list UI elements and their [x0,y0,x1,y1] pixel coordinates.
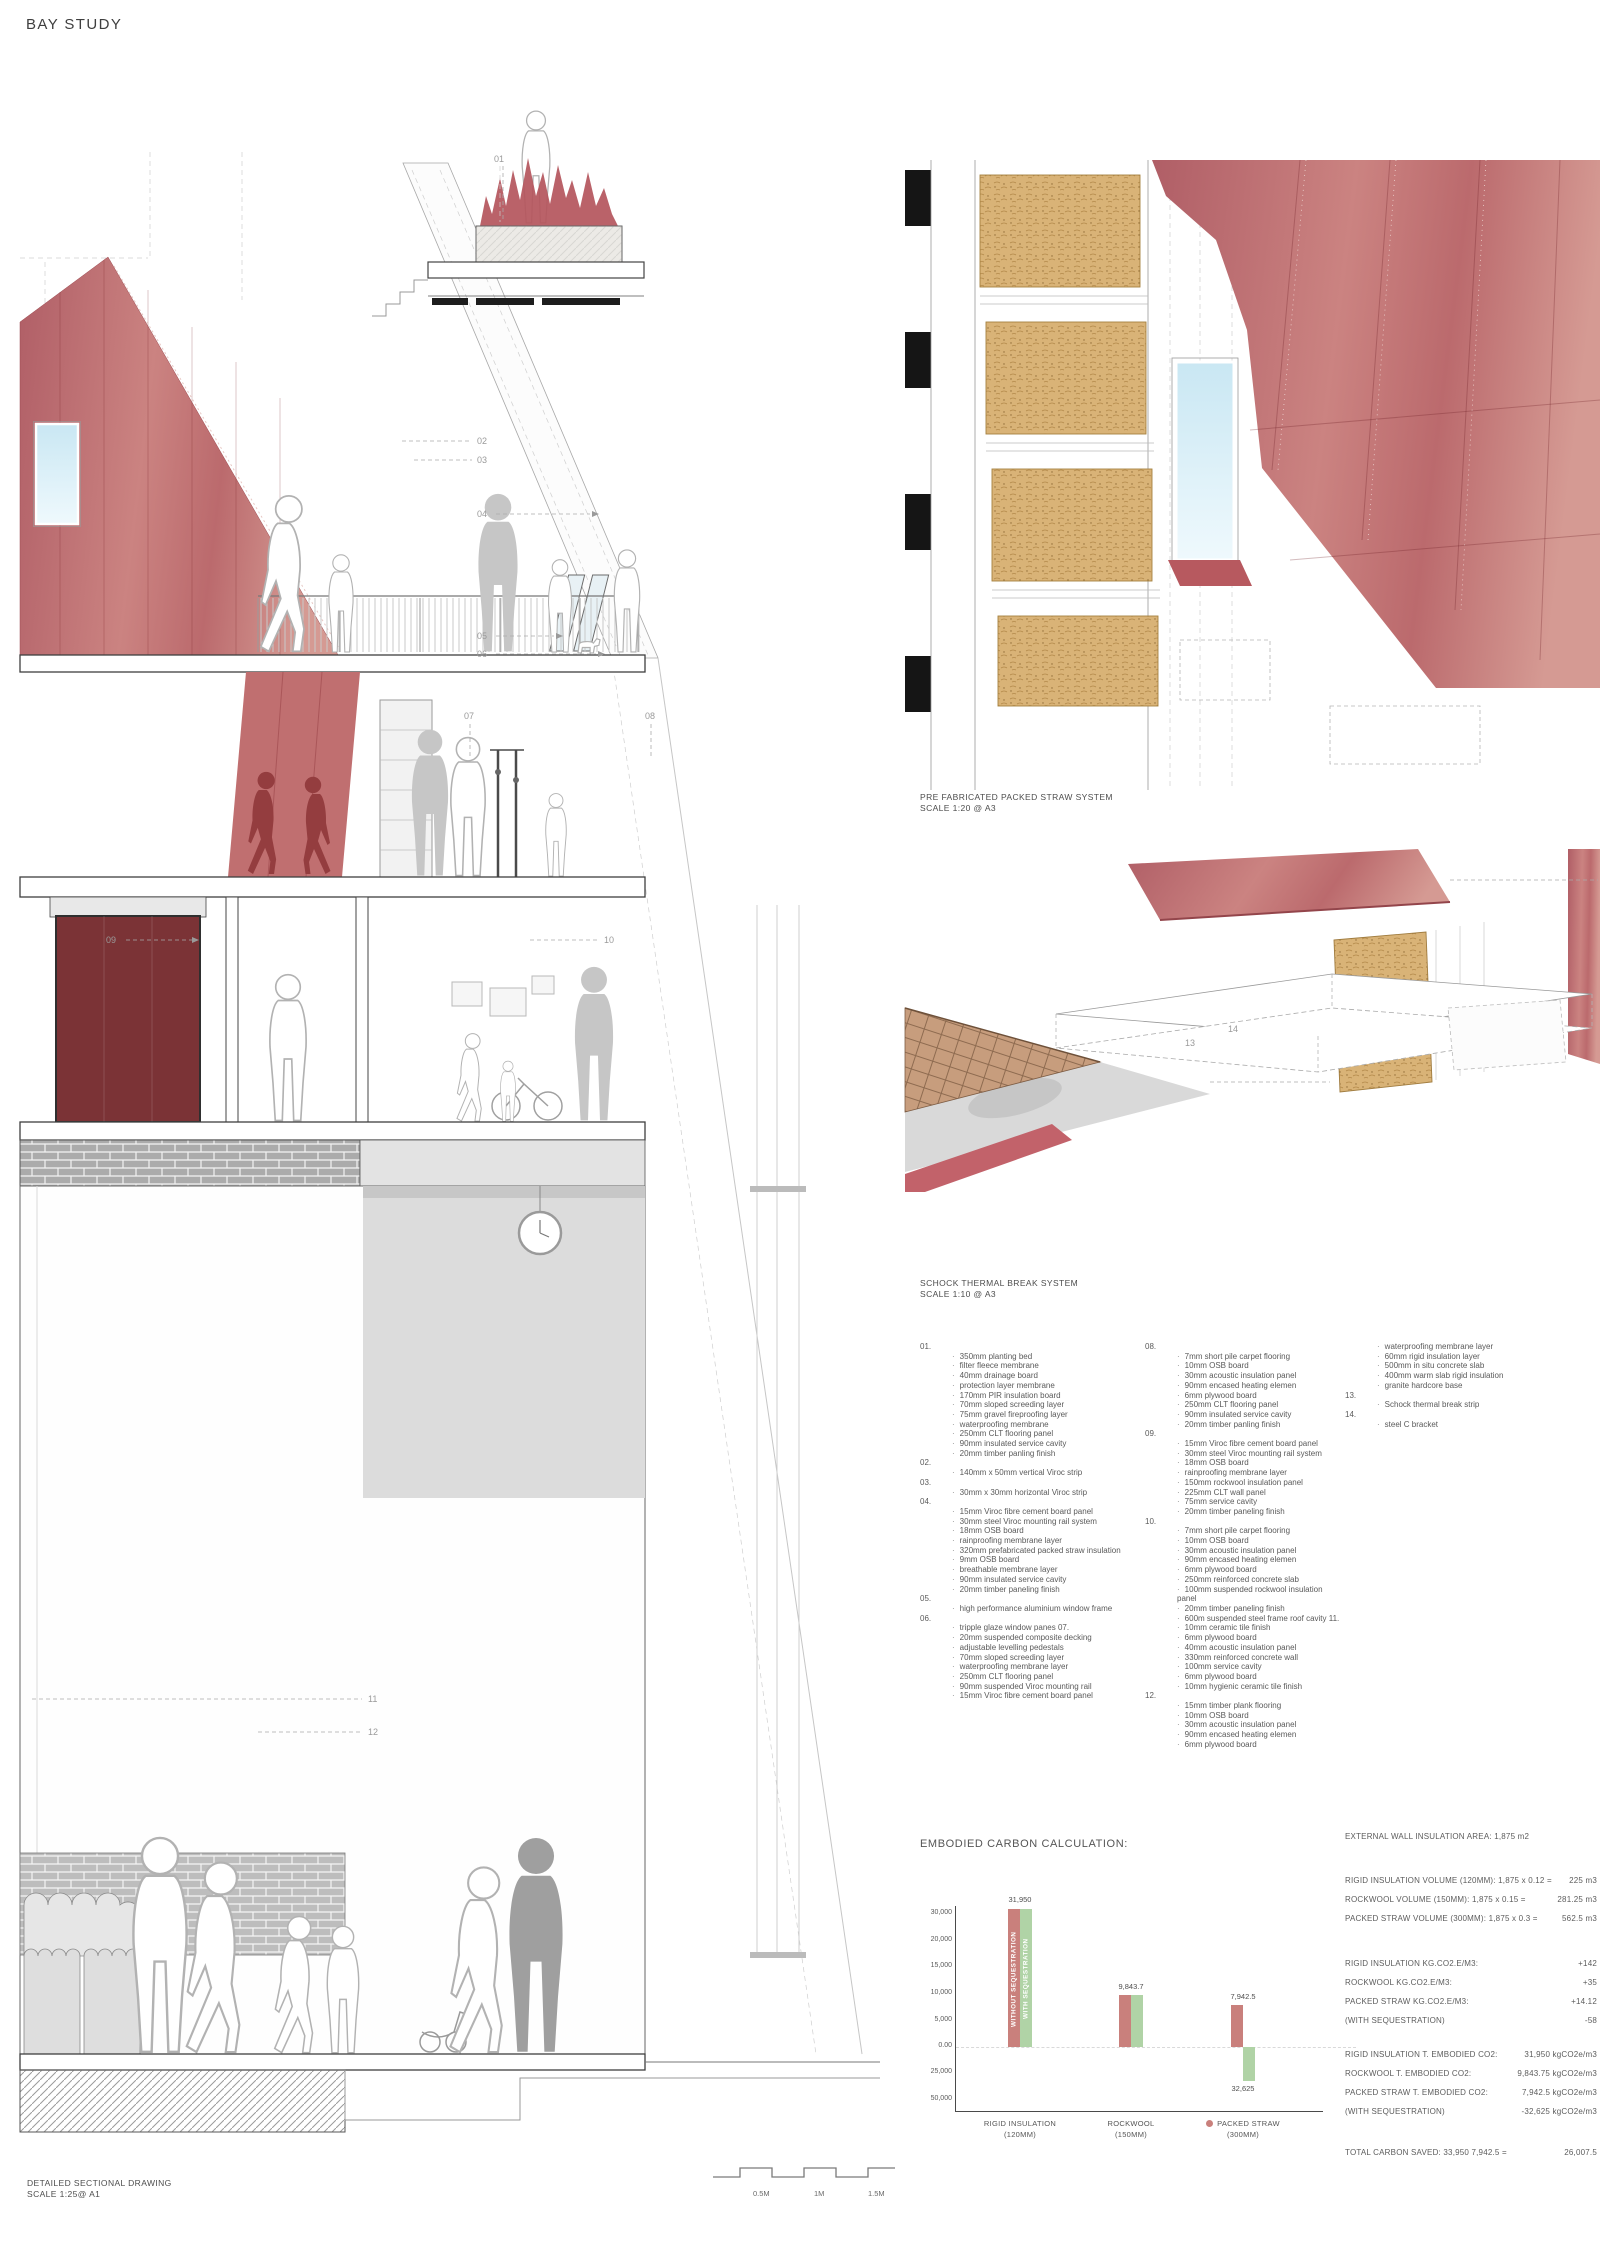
scale-1m: 1M [814,2189,824,2198]
chart-title: EMBODIED CARBON CALCULATION: [920,1838,1128,1850]
hedge [24,1893,136,1956]
note-row: 90mm encased heating elemen [1145,1555,1340,1565]
callout-10: 10 [604,935,614,945]
dark-red-room [56,916,200,1122]
y-tick: 30,000 [920,1909,952,1916]
calc-row: (WITH SEQUESTRATION)-32,625 kgCO2e/m3 [1345,2107,1597,2117]
y-tick: 20,000 [920,1936,952,1943]
note-row: 20mm timber panling finish [1145,1420,1340,1430]
calc-volumes: RIGID INSULATION VOLUME (120MM): 1,875 x… [1345,1876,1597,1933]
note-row: rainproofing membrane layer [1145,1468,1340,1478]
note-row: 90mm insulated service cavity [920,1439,1135,1449]
note-row: 250mm CLT flooring panel [920,1429,1135,1439]
callout-05: 05 [477,631,487,641]
calc-factors: RIGID INSULATION KG.CO2.E/M3:+142ROCKWOO… [1345,1959,1597,2035]
note-row: waterproofing membrane layer [920,1662,1135,1672]
note-row: 18mm OSB board [1145,1458,1340,1468]
scale-bar [705,2165,915,2185]
bar-rockwool-with [1131,1995,1143,2047]
notes-column-2: 08.7mm short pile carpet flooring10mm OS… [1145,1342,1340,1750]
calc-row: RIGID INSULATION KG.CO2.E/M3:+142 [1345,1959,1597,1969]
guide-lines [20,152,242,318]
note-row: 10. [1145,1517,1340,1527]
embodied-carbon-chart: 30,000 20,000 15,000 10,000 5,000 0.00 2… [920,1890,1350,2190]
note-row: 140mm x 50mm vertical Viroc strip [920,1468,1135,1478]
calc-row: ROCKWOOL VOLUME (150MM): 1,875 x 0.15 =2… [1345,1895,1597,1905]
note-row: 15mm timber plank flooring [1145,1701,1340,1711]
bar-value-label: 31,950 [985,1895,1055,1904]
scale-15m: 1.5M [868,2189,885,2198]
note-row: 06. [920,1614,1135,1624]
note-row: 330mm reinforced concrete wall [1145,1653,1340,1663]
level-2 [228,672,566,877]
level-3 [50,897,613,1122]
note-row: waterproofing membrane layer [1345,1342,1580,1352]
note-row: 90mm suspended Viroc mounting rail [920,1682,1135,1692]
note-row: 15mm Viroc fibre cement board panel [920,1507,1135,1517]
note-row: 90mm encased heating elemen [1145,1381,1340,1391]
note-row: 7mm short pile carpet flooring [1145,1526,1340,1536]
note-row: Schock thermal break strip [1345,1400,1580,1410]
calc-row: EXTERNAL WALL INSULATION AREA: 1,875 m2 [1345,1832,1597,1842]
callout-03: 03 [477,455,487,465]
note-row: 30mm acoustic insulation panel [1145,1720,1340,1730]
note-row: 04. [920,1497,1135,1507]
note-row: 150mm rockwool insulation panel [1145,1478,1340,1488]
callout-08: 08 [645,711,655,721]
detail1-label: PRE FABRICATED PACKED STRAW SYSTEMSCALE … [920,792,1113,814]
callout-01: 01 [494,154,504,164]
note-row: 30mm steel Viroc mounting rail system [920,1517,1135,1527]
callout-12: 12 [368,1727,378,1737]
callout-06: 06 [477,649,487,659]
bar-straw-with [1243,2047,1255,2081]
note-row: 90mm insulated service cavity [920,1575,1135,1585]
category-rockwool: ROCKWOOL(150MM) [1071,2118,1191,2140]
y-tick: 0.00 [920,2042,952,2049]
roof-panel [1128,849,1450,920]
foundation-hatch [20,2070,345,2132]
note-row: 7mm short pile carpet flooring [1145,1352,1340,1362]
note-row: 70mm sloped screeding layer [920,1400,1135,1410]
note-row: 10mm OSB board [1145,1361,1340,1371]
note-row: 08. [1145,1342,1340,1352]
category-rigid: RIGID INSULATION(120MM) [960,2118,1080,2140]
scale-05m: 0.5M [753,2189,770,2198]
note-row: 250mm CLT flooring panel [1145,1400,1340,1410]
figure-child-3 [546,794,567,877]
notes-column-1: 01.350mm planting bedfilter fleece membr… [920,1342,1135,1701]
note-row: 6mm plywood board [1145,1565,1340,1575]
ground-slab [20,2054,645,2070]
note-row: 30mm acoustic insulation panel [1145,1546,1340,1556]
y-axis [955,1906,956,2111]
note-row: 75mm service cavity [1145,1497,1340,1507]
foundation-steps [345,2070,880,2120]
calc-row: (WITH SEQUESTRATION)-58 [1345,2016,1597,2026]
calc-row: PACKED STRAW VOLUME (300MM): 1,875 x 0.3… [1345,1914,1597,1924]
floor-slab-2 [20,877,645,897]
empty-panel-outline [1180,640,1270,700]
detail-window [1168,358,1252,586]
note-row: adjustable levelling pedestals [920,1643,1135,1653]
note-row: 40mm drainage board [920,1371,1135,1381]
page-title: BAY STUDY [26,16,122,33]
detail-thermal-break: 13 14 [900,840,1600,1270]
back-wall [363,1186,645,1498]
note-row: 6mm plywood board [1145,1391,1340,1401]
callout-09: 09 [106,935,116,945]
y-tick: 25,000 [920,2068,952,2075]
note-row: breathable membrane layer [920,1565,1135,1575]
note-row: 03. [920,1478,1135,1488]
calc-row: PACKED STRAW KG.CO2.E/M3:+14.12 [1345,1997,1597,2007]
note-row: 75mm gravel fireproofing layer [920,1410,1135,1420]
facade-window [36,424,78,524]
figure-4 [451,738,485,876]
note-row: 05. [920,1594,1135,1604]
note-row: 90mm insulated service cavity [1145,1410,1340,1420]
note-row: 90mm encased heating elemen [1145,1730,1340,1740]
callout-11: 11 [368,1694,377,1704]
note-row: 10mm OSB board [1145,1536,1340,1546]
note-row: 320mm prefabricated packed straw insulat… [920,1546,1135,1556]
note-row: 250mm reinforced concrete slab [1145,1575,1340,1585]
y-tick: 5,000 [920,2016,952,2023]
callout-02: 02 [477,436,487,446]
note-row: 70mm sloped screeding layer [920,1653,1135,1663]
sectional-drawing: 01 02 03 04 05 06 07 08 09 10 11 12 [15,95,905,2165]
note-row: 10mm hygienic ceramic tile finish [1145,1682,1340,1692]
note-row: tripple glaze window panes 07. [920,1623,1135,1633]
note-row: 09. [1145,1429,1340,1439]
note-row: high performance aluminium window frame [920,1604,1135,1614]
note-row: 250mm CLT flooring panel [920,1672,1135,1682]
bar-series-label-with: with sequestration [1020,1914,1032,2044]
figure-5 [270,975,306,1121]
wall-section-cuts [905,170,931,712]
note-row: 18mm OSB board [920,1526,1135,1536]
note-row: 400mm warm slab rigid insulation [1345,1371,1580,1381]
zero-line [956,2047,1356,2048]
note-row: filter fleece membrane [920,1361,1135,1371]
note-row: 14. [1345,1410,1580,1420]
calc-totals: RIGID INSULATION T. EMBODIED CO2:31,950 … [1345,2050,1597,2126]
bar-value-label: 32,625 [1208,2084,1278,2093]
note-row: 350mm planting bed [920,1352,1135,1362]
note-row: 20mm suspended composite decking [920,1633,1135,1643]
note-row: protection layer membrane [920,1381,1135,1391]
packed-straw-legend-dot [1206,2120,1213,2127]
x-axis [955,2111,1323,2112]
bar-value-label: 7,942.5 [1208,1992,1278,2001]
roof-planter [372,111,644,316]
figure-woman-gray [575,967,613,1121]
calc-row: PACKED STRAW T. EMBODIED CO2:7,942.5 kgC… [1345,2088,1597,2098]
note-row: 500mm in situ concrete slab [1345,1361,1580,1371]
tall-glazing [757,905,799,1955]
calc-row: TOTAL CARBON SAVED: 33,950 7,942.5 =26,0… [1345,2148,1597,2158]
y-tick: 15,000 [920,1962,952,1969]
empty-panel-outline-2 [1330,706,1480,764]
bar-value-label: 9,843.7 [1096,1982,1166,1991]
slab-assembly [1056,974,1592,1072]
note-row: 100mm suspended rockwool insulation pane… [1145,1585,1340,1604]
note-row: 20mm timber paneling finish [1145,1507,1340,1517]
note-row: 30mm acoustic insulation panel [1145,1371,1340,1381]
note-row: 20mm timber panling finish [920,1449,1135,1459]
note-row: 9mm OSB board [920,1555,1135,1565]
callout-07: 07 [464,711,474,721]
note-row: 60mm rigid insulation layer [1345,1352,1580,1362]
callout-14: 14 [1228,1024,1238,1034]
note-row: 20mm timber paneling finish [920,1585,1135,1595]
note-row: 10mm OSB board [1145,1711,1340,1721]
note-row: 600m suspended steel frame roof cavity 1… [1145,1614,1340,1624]
note-row: 15mm Viroc fibre cement board panel [1145,1439,1340,1449]
presentation-board: BAY STUDY [0,0,1600,2265]
note-row: rainproofing membrane layer [920,1536,1135,1546]
detail2-label: SCHOCK THERMAL BREAK SYSTEMSCALE 1:10 @ … [920,1278,1078,1300]
note-row: waterproofing membrane [920,1420,1135,1430]
note-row: 6mm plywood board [1145,1672,1340,1682]
calc-area: EXTERNAL WALL INSULATION AREA: 1,875 m2 [1345,1832,1597,1851]
calc-saved: TOTAL CARBON SAVED: 33,950 7,942.5 =26,0… [1345,2148,1597,2167]
detail-packed-straw [900,150,1600,810]
note-row: 20mm timber paneling finish [1145,1604,1340,1614]
calc-row: ROCKWOOL T. EMBODIED CO2:9,843.75 kgCO2e… [1345,2069,1597,2079]
calc-row: RIGID INSULATION T. EMBODIED CO2:31,950 … [1345,2050,1597,2060]
bar-series-label-without: without sequestration [1008,1914,1020,2044]
facade-column [1568,849,1600,1064]
calc-row: ROCKWOOL KG.CO2.E/M3:+35 [1345,1978,1597,1988]
note-row: 10mm ceramic tile finish [1145,1623,1340,1633]
floor-slab-1 [20,655,645,672]
category-packed-straw: PACKED STRAW(300MM) [1183,2118,1303,2140]
y-tick: 50,000 [920,2095,952,2102]
note-row: 01. [920,1342,1135,1352]
note-row: 15mm Viroc fibre cement board panel [920,1691,1135,1701]
callout-13: 13 [1185,1038,1195,1048]
note-row: 12. [1145,1691,1340,1701]
figure-toddler [501,1061,516,1121]
note-row: 40mm acoustic insulation panel [1145,1643,1340,1653]
floor-slab-3 [20,1122,645,1140]
note-row: 30mm steel Viroc mounting rail system [1145,1449,1340,1459]
note-row: granite hardcore base [1345,1381,1580,1391]
callout-04: 04 [477,509,487,519]
note-row: 100mm service cavity [1145,1662,1340,1672]
note-row: 6mm plywood board [1145,1633,1340,1643]
note-row: steel C bracket [1345,1420,1580,1430]
note-row: 30mm x 30mm horizontal Viroc strip [920,1488,1135,1498]
note-row: 13. [1345,1391,1580,1401]
figure-child-4 [457,1034,481,1121]
section-label: DETAILED SECTIONAL DRAWINGSCALE 1:25@ A1 [27,2178,172,2200]
note-row: 170mm PIR insulation board [920,1391,1135,1401]
note-row: 6mm plywood board [1145,1740,1340,1750]
bar-straw-without [1231,2005,1243,2047]
note-row: 02. [920,1458,1135,1468]
notes-column-3: waterproofing membrane layer60mm rigid i… [1345,1342,1580,1429]
bar-rockwool-without [1119,1995,1131,2047]
y-tick: 10,000 [920,1989,952,1996]
red-panel-interior [228,672,360,877]
straw-infill-panels [980,175,1160,706]
brick-band [20,1140,360,1186]
calc-row: RIGID INSULATION VOLUME (120MM): 1,875 x… [1345,1876,1597,1886]
note-row: 225mm CLT wall panel [1145,1488,1340,1498]
